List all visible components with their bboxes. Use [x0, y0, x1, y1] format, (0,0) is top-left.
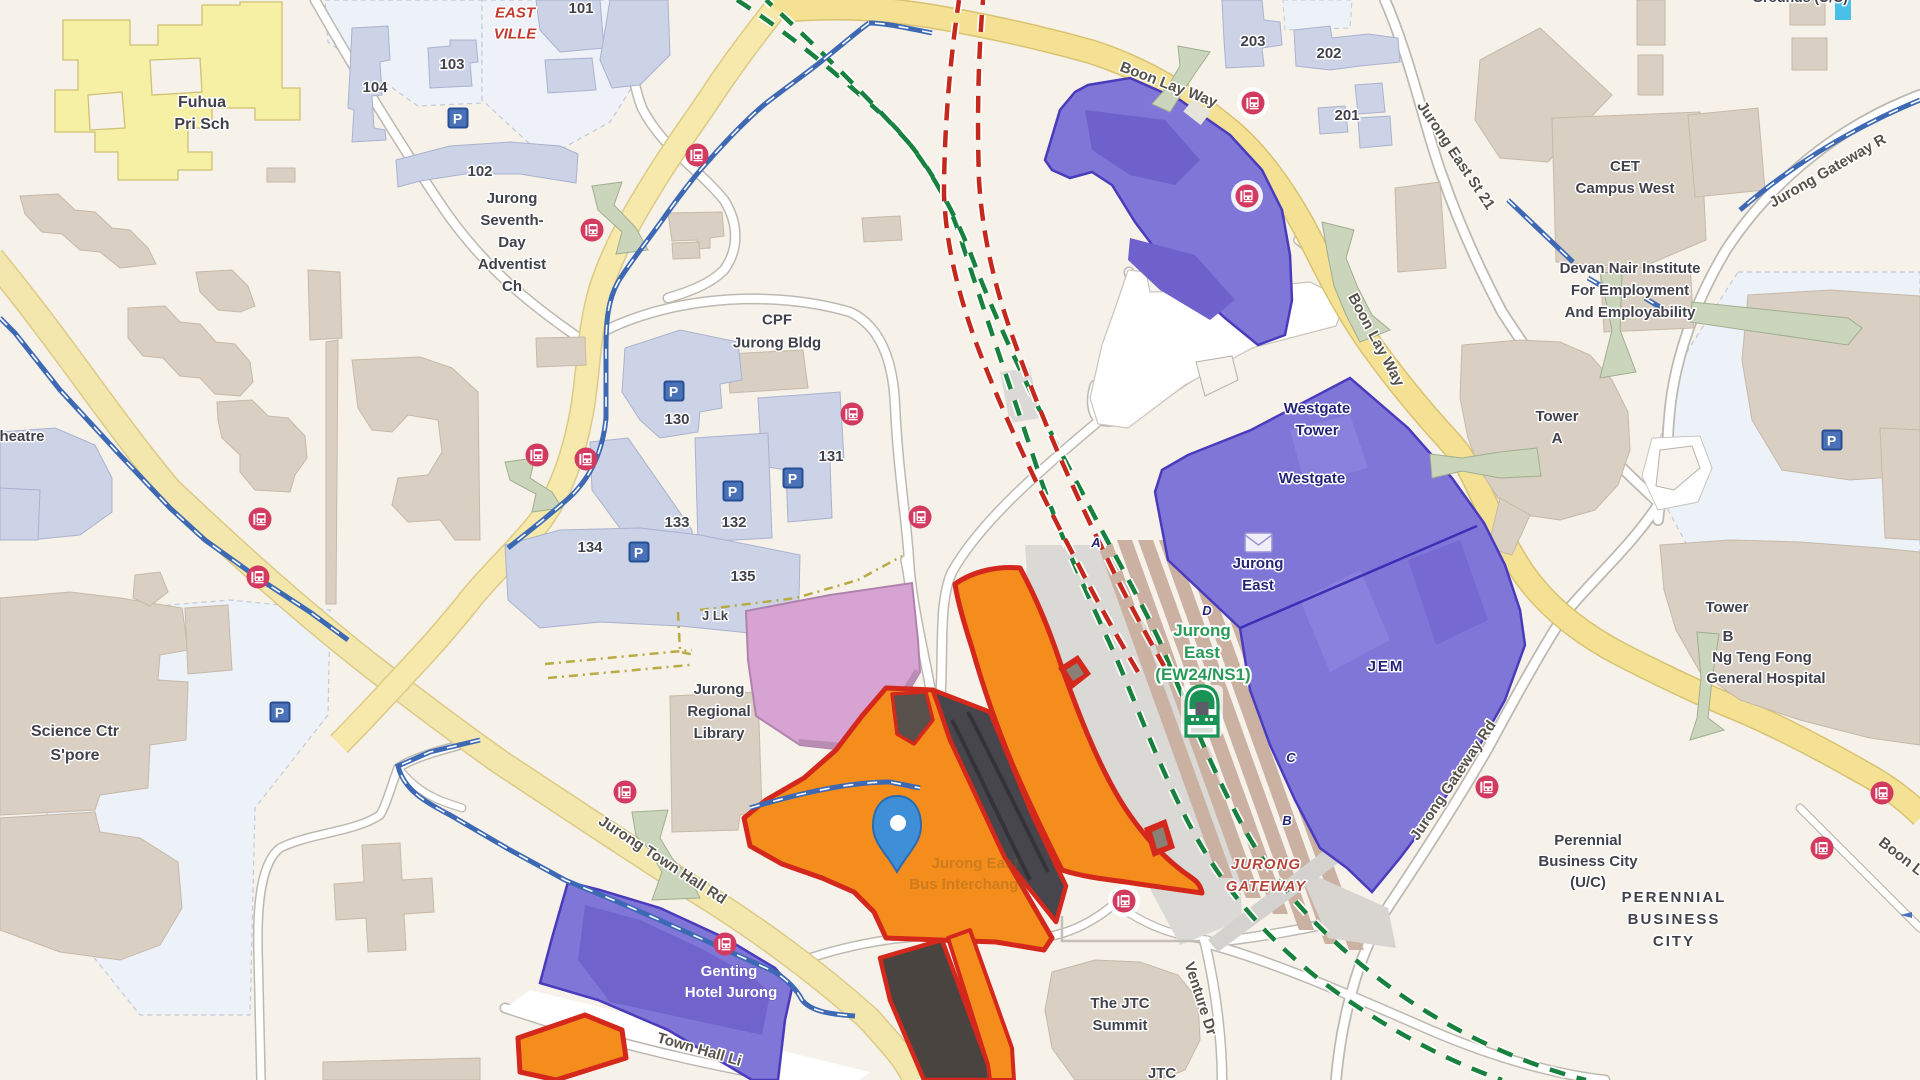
svg-text:J Lk: J Lk	[702, 608, 729, 623]
svg-text:JEM: JEM	[1368, 658, 1405, 675]
svg-text:General Hospital: General Hospital	[1706, 670, 1825, 687]
svg-text:Grounds (U/C): Grounds (U/C)	[1752, 0, 1848, 5]
svg-text:133: 133	[664, 514, 689, 531]
svg-text:103: 103	[439, 56, 464, 73]
svg-text:203: 203	[1240, 33, 1265, 50]
svg-text:A: A	[1090, 535, 1100, 550]
svg-text:132: 132	[721, 514, 746, 531]
svg-text:JTC: JTC	[1148, 1065, 1177, 1080]
svg-text:134: 134	[577, 539, 603, 556]
svg-text:B: B	[1282, 813, 1291, 828]
svg-text:Tower: Tower	[1705, 599, 1748, 616]
svg-text:101: 101	[568, 0, 593, 17]
svg-text:Devan Nair InstituteFor Employ: Devan Nair InstituteFor EmploymentAnd Em…	[1560, 260, 1701, 321]
svg-text:Ng Teng Fong: Ng Teng Fong	[1712, 649, 1812, 666]
svg-text:202: 202	[1316, 45, 1341, 62]
svg-text:131: 131	[818, 448, 843, 465]
svg-text:JurongRegionalLibrary: JurongRegionalLibrary	[687, 681, 750, 742]
svg-text:135: 135	[730, 568, 755, 585]
svg-text:D: D	[1202, 603, 1212, 618]
svg-text:130: 130	[664, 411, 689, 428]
svg-text:B: B	[1723, 628, 1734, 645]
svg-text:104: 104	[362, 79, 388, 96]
svg-text:201: 201	[1334, 107, 1359, 124]
svg-text:102: 102	[467, 163, 492, 180]
svg-text:C: C	[1286, 750, 1296, 765]
svg-text:heatre: heatre	[0, 428, 45, 445]
svg-text:Westgate: Westgate	[1279, 470, 1345, 487]
